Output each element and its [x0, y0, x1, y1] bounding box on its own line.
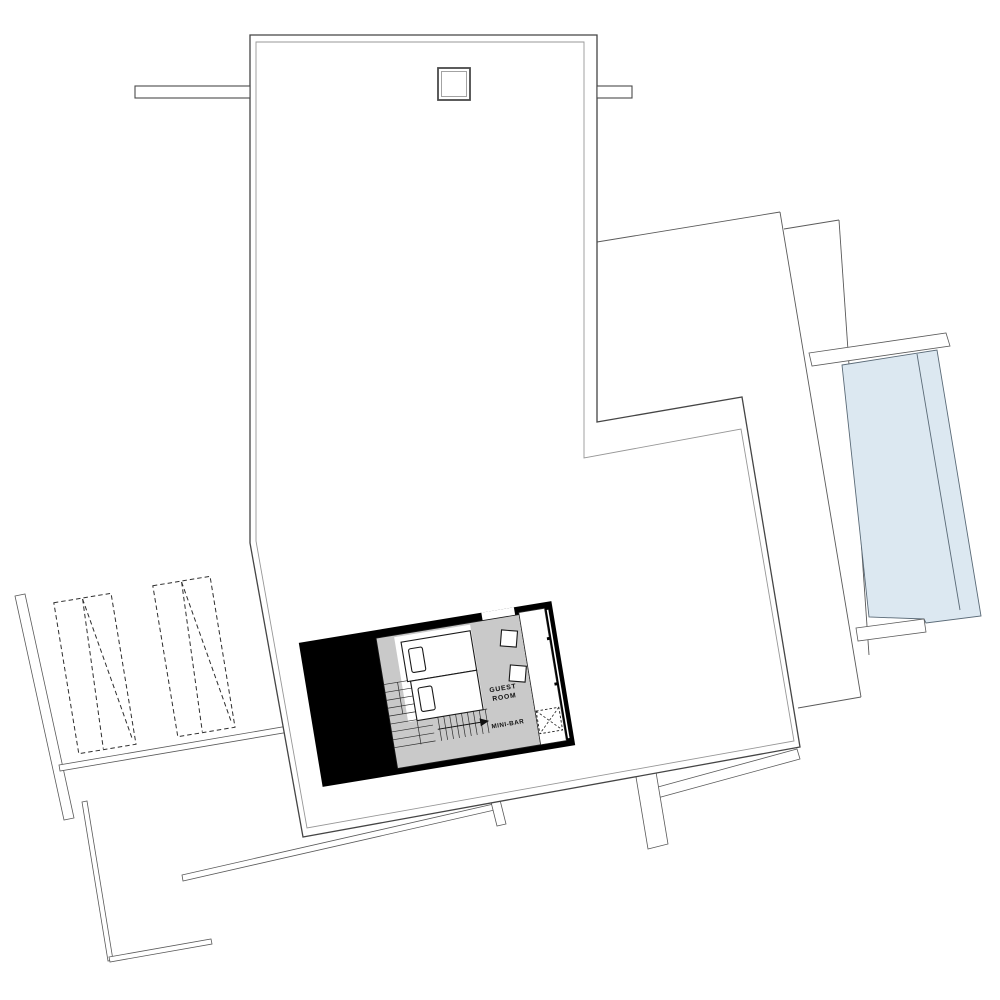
pool-terrace — [809, 333, 981, 641]
parking-stall-2 — [153, 576, 235, 736]
terrace-stub-wall — [636, 772, 668, 849]
stool-2 — [509, 665, 526, 682]
stool-1 — [500, 630, 517, 647]
pool — [842, 350, 981, 623]
entry-canopy-bar-left — [135, 86, 250, 98]
wing2-top-edge — [784, 220, 839, 229]
minibar-unit — [536, 707, 562, 733]
parking-stall-outline — [153, 576, 235, 736]
glazing-marker-dot — [547, 637, 550, 640]
wing-top-edge — [597, 212, 780, 242]
parking-stall-diagonal-line — [83, 595, 132, 742]
l-wall-horizontal-leg — [109, 939, 212, 962]
parking-stall-1 — [54, 593, 136, 753]
parking-stall-diagonal-line — [182, 578, 231, 725]
l-wall-vertical-leg — [82, 801, 113, 961]
entry-canopy-bar-right — [597, 86, 632, 98]
minibar-box — [536, 707, 562, 733]
path-wall-end-post — [491, 800, 506, 826]
parking-stall-divider-line — [178, 582, 207, 732]
parking-stall-outline — [54, 593, 136, 753]
site-plan-canvas: GUEST ROOM MINI-BAR — [0, 0, 1000, 1000]
roof-skylight — [438, 68, 470, 100]
wing-bottom-edge — [798, 697, 861, 708]
glazing-marker-dot — [554, 682, 557, 685]
left-boundary-wall — [15, 594, 74, 820]
parking-curb-wall — [59, 726, 289, 771]
parking-stall-divider-line — [79, 599, 108, 749]
wing-right-edge — [780, 212, 861, 697]
